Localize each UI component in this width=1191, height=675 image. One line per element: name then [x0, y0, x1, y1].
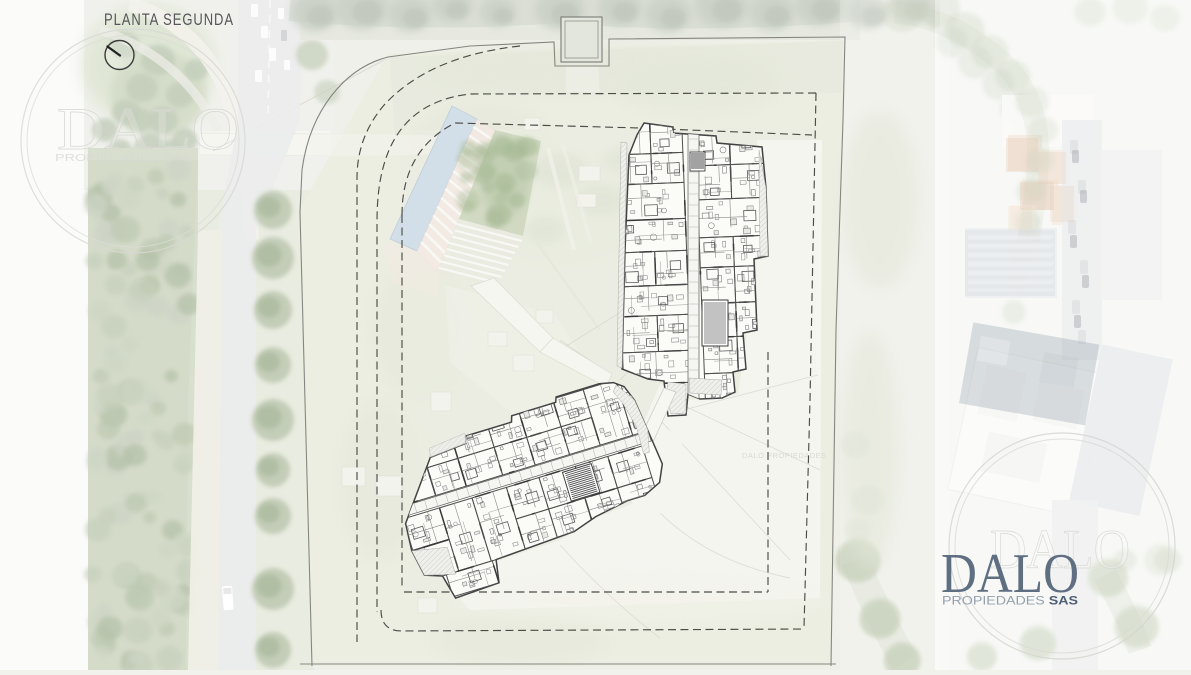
- svg-text:PROPIEDADES SAS: PROPIEDADES SAS: [55, 152, 192, 164]
- svg-text:DALO PROPIEDADES: DALO PROPIEDADES: [742, 451, 827, 460]
- svg-text:PROPIEDADES SAS: PROPIEDADES SAS: [942, 594, 1078, 608]
- svg-text:PLANTA SEGUNDA: PLANTA SEGUNDA: [104, 11, 234, 29]
